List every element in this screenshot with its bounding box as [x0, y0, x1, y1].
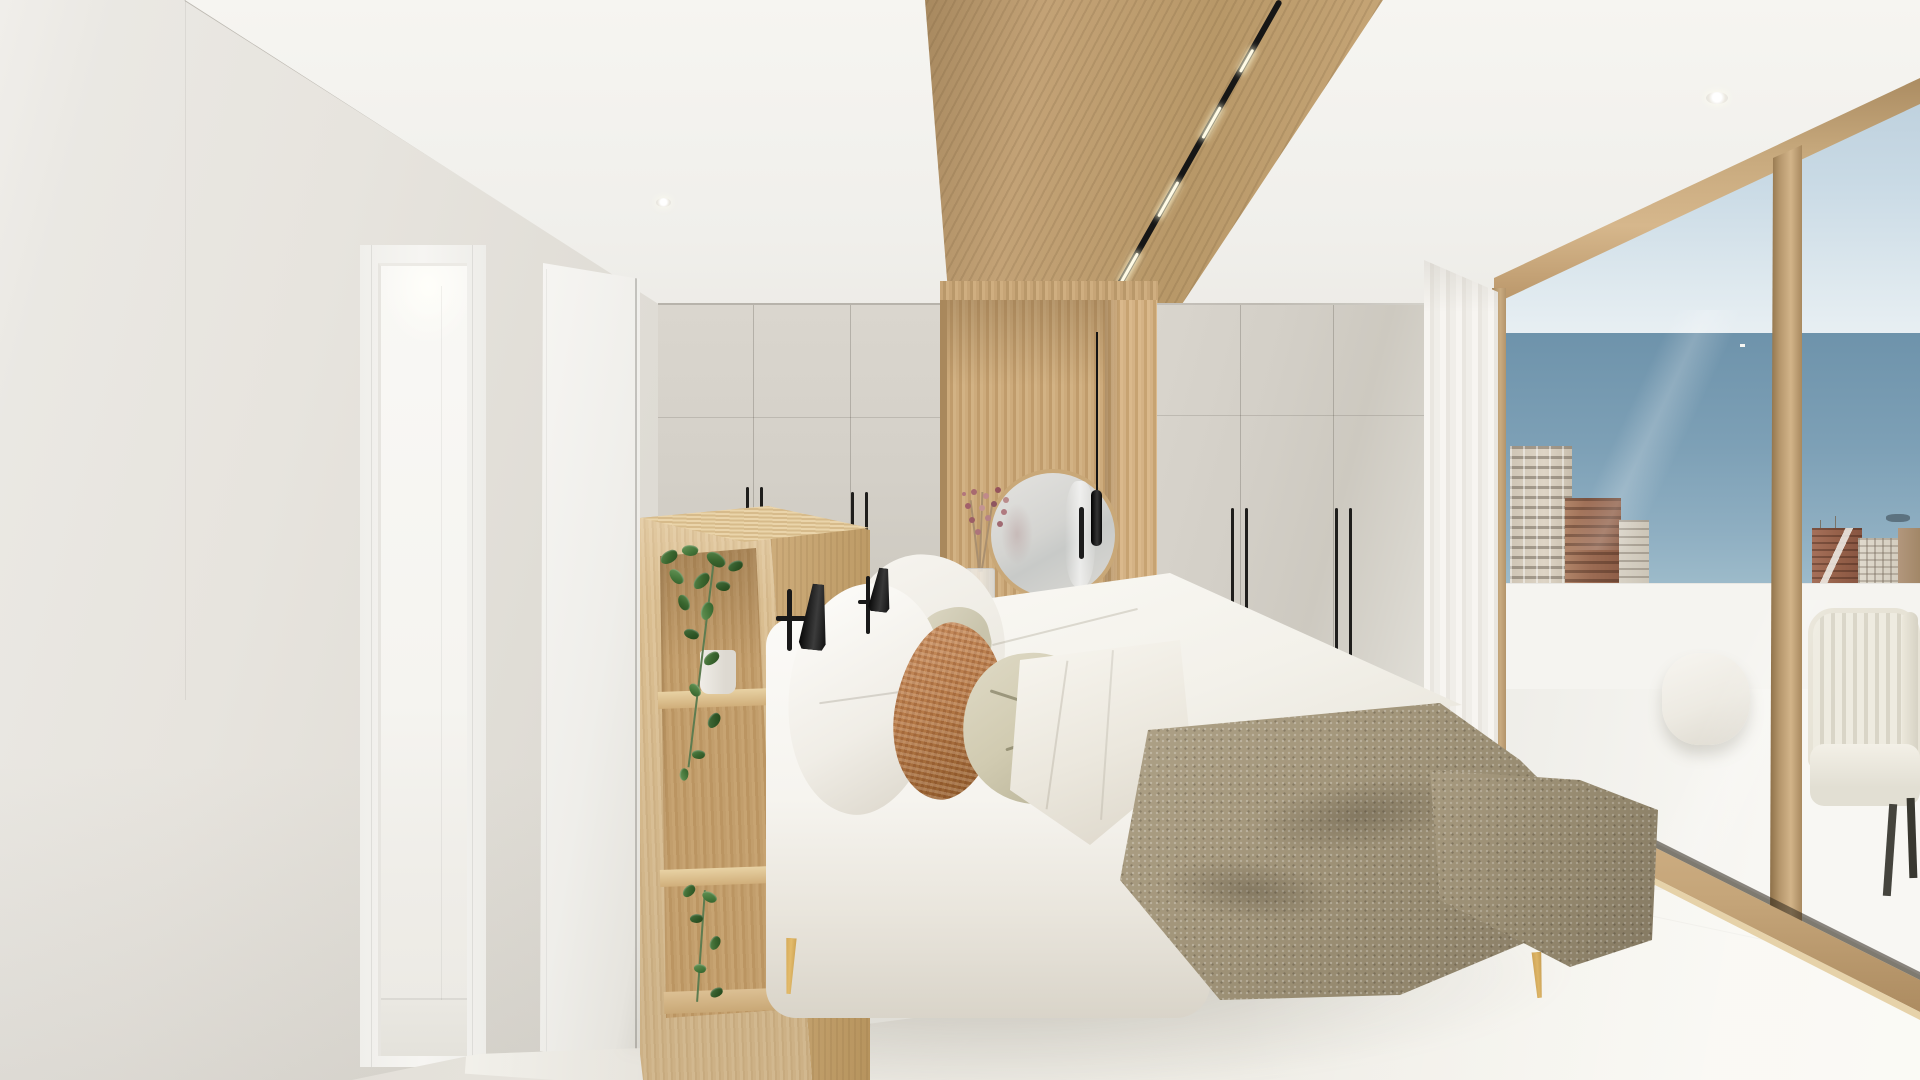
sheet-fold: [992, 608, 1138, 646]
leaf-icon: [715, 579, 732, 593]
leaf-icon: [681, 543, 699, 558]
wardrobe-panel-seam: [1157, 415, 1428, 416]
high-rise-tower: [1898, 528, 1920, 584]
door-frame-molding: [371, 245, 372, 1067]
doorway-opening: [378, 263, 467, 1056]
leaf-icon: [683, 626, 701, 642]
antenna-icon: [1835, 516, 1836, 528]
door-edge-shadow: [635, 275, 637, 1065]
hallway-wall-corner: [441, 286, 442, 1001]
leaf-icon: [678, 767, 691, 781]
dried-flowers: [962, 492, 966, 496]
hallway-light-glow: [381, 266, 467, 346]
leaf-icon: [680, 883, 697, 899]
leaf-icon: [701, 650, 721, 667]
leaf-icon: [709, 986, 724, 998]
leaf-icon: [677, 594, 691, 612]
high-rise-tower: [1858, 538, 1898, 584]
high-rise-tower: [1812, 528, 1862, 584]
sheet-fold: [1046, 661, 1069, 810]
leaf-icon: [707, 934, 724, 951]
glass-reflection: [1510, 310, 1810, 550]
leaf-icon: [691, 748, 706, 760]
wall-lamp-arm: [776, 616, 806, 621]
mirror-flower-reflection: [1001, 503, 1033, 565]
plant-stem: [688, 564, 715, 768]
wall-corner-edge: [185, 0, 186, 700]
antenna-icon: [1820, 520, 1821, 528]
ceiling-spotlight-icon: [1706, 92, 1728, 104]
trailing-plant-upper: [648, 545, 768, 875]
pendant-light: [1091, 490, 1102, 546]
door-hinge-line: [546, 269, 547, 1057]
wardrobe-panel-seam: [658, 417, 940, 418]
plant-stem: [696, 890, 706, 1002]
leaf-icon: [658, 548, 679, 565]
sheet-fold: [1100, 650, 1114, 820]
window-mullion: [1770, 140, 1802, 940]
leaf-icon: [704, 711, 723, 730]
door-frame-molding: [472, 245, 473, 1067]
leaf-icon: [727, 560, 744, 572]
mirror-pendant-reflection: [1079, 507, 1084, 559]
open-door-leaf: [540, 255, 640, 1067]
leaf-icon: [697, 600, 716, 622]
leaf-icon: [667, 566, 685, 586]
leaf-icon: [704, 548, 727, 571]
bedroom-render: [0, 0, 1920, 1080]
trailing-plant-lower: [652, 880, 762, 1020]
wardrobe-handle: [865, 492, 868, 532]
blanket-fold-shadow: [1157, 851, 1342, 929]
islet: [1886, 514, 1910, 522]
pendant-cord: [1096, 332, 1098, 492]
leaf-icon: [693, 962, 708, 975]
hallway-floor: [381, 1000, 467, 1056]
ceiling-spotlight-icon: [656, 198, 671, 207]
leaf-icon: [688, 682, 702, 699]
